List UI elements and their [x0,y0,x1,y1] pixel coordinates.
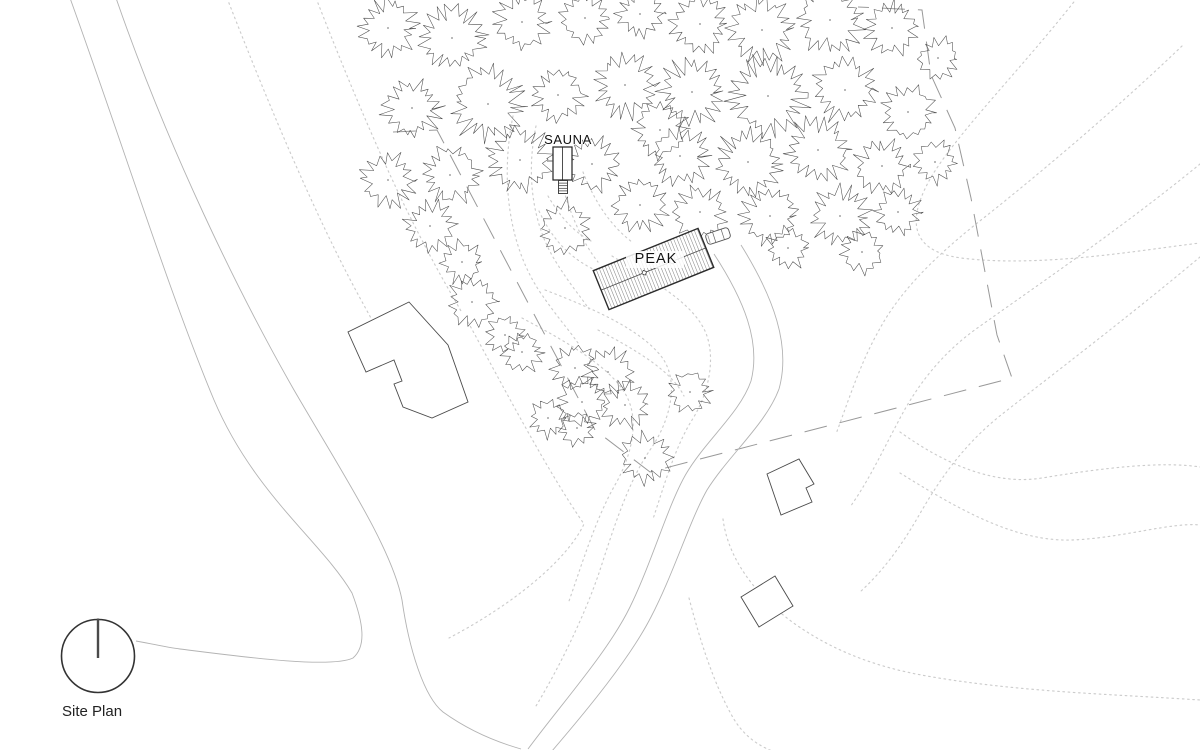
tree [668,373,713,412]
tree [451,63,528,144]
tree-trunk-dot [411,107,413,109]
tree-trunk-dot [547,417,549,419]
tree [357,0,420,58]
tree-trunk-dot [521,351,523,353]
neighbor-house-west [348,302,468,418]
tree [766,225,809,269]
sauna-steps-outline [559,181,568,194]
tree [811,183,873,245]
tree-trunk-dot [576,427,578,429]
contour-lines [227,0,1200,750]
tree-trunk-dot [624,404,626,406]
contour-line [850,164,1200,507]
road-edge-line [70,0,362,662]
contour-line [836,46,1182,434]
shed-south [741,576,793,627]
tree-trunk-dot [659,129,661,131]
contour-line [539,211,593,269]
tree [531,70,588,124]
tree-trunk-dot [699,23,701,25]
contour-line [522,318,633,604]
site-plan-drawing [0,0,1200,750]
tree-trunk-dot [429,225,431,227]
tree-trunk-dot [639,204,641,206]
tree-trunk-dot [557,94,559,96]
tree-trunk-dot [829,19,831,21]
tree-trunk-dot [691,91,693,93]
tree [913,140,957,186]
road-edge-line [528,254,754,749]
tree [917,36,957,80]
tree [530,399,567,440]
neighbor-buildings [348,302,814,627]
drawing-title: Site Plan [62,703,122,720]
road-edge-line [116,0,521,749]
tree [839,228,883,276]
tree [864,0,919,56]
tree [797,0,867,52]
tree-trunk-dot [521,21,523,23]
tree-trunk-dot [487,103,489,105]
tree-trunk-dot [907,111,909,113]
tree [631,102,691,162]
contour-line [723,519,1200,700]
tree-trunk-dot [767,95,769,97]
tree-trunk-dot [644,457,646,459]
tree [654,127,712,187]
tree-trunk-dot [461,261,463,263]
tree [783,116,852,182]
tree-trunk-dot [607,371,609,373]
peak-house [593,228,714,309]
tree-trunk-dot [839,215,841,217]
tree-trunk-dot [451,37,453,39]
contour-line [900,432,1200,480]
tree-trunk-dot [769,215,771,217]
tree-trunk-dot [591,163,593,165]
tree-trunk-dot [891,27,893,29]
contour-line [316,0,461,311]
tree [594,52,661,121]
peak-label: PEAK [635,251,678,267]
tree [622,430,674,487]
contour-line [449,322,584,638]
tree-trunk-dot [881,165,883,167]
tree [423,146,484,203]
site-plan-canvas: SAUNA PEAK Site Plan [0,0,1200,750]
tree-trunk-dot [387,27,389,29]
sauna-label: SAUNA [544,132,592,147]
tree-trunk-dot [471,301,473,303]
tree-trunk-dot [937,57,939,59]
tree-trunk-dot [844,89,846,91]
contour-line [583,172,632,242]
shed-northeast [767,459,814,515]
tree [725,0,796,66]
tree-trunk-dot [387,179,389,181]
tree-trunk-dot [934,161,936,163]
tree-trunk-dot [504,334,506,336]
tree-trunk-dot [639,13,641,15]
tree-trunk-dot [897,211,899,213]
tree [418,4,489,67]
trees [357,0,957,486]
contour-line [900,473,1200,540]
tree [448,279,499,328]
tree-trunk-dot [519,159,521,161]
tree [668,0,727,53]
tree-trunk-dot [581,401,583,403]
tree-trunk-dot [624,84,626,86]
tree-trunk-dot [861,251,863,253]
tree-trunk-dot [449,174,451,176]
tree-trunk-dot [787,247,789,249]
tree [540,197,590,255]
tree-trunk-dot [584,17,586,19]
tree [558,0,609,45]
tree-trunk-dot [747,161,749,163]
contour-line [916,0,1200,261]
tree-trunk-dot [689,391,691,393]
tree-trunk-dot [817,149,819,151]
north-arrow [62,619,135,693]
tree [492,0,552,51]
tree-trunk-dot [574,367,576,369]
tree [613,0,666,39]
contour-line [536,290,671,706]
tree-trunk-dot [679,155,681,157]
tree [716,126,784,197]
tree [655,57,723,128]
contour-line [860,257,1200,592]
tree-trunk-dot [761,29,763,31]
road-edge-line [552,245,783,750]
tree-trunk-dot [699,211,701,213]
tree-trunk-dot [564,227,566,229]
